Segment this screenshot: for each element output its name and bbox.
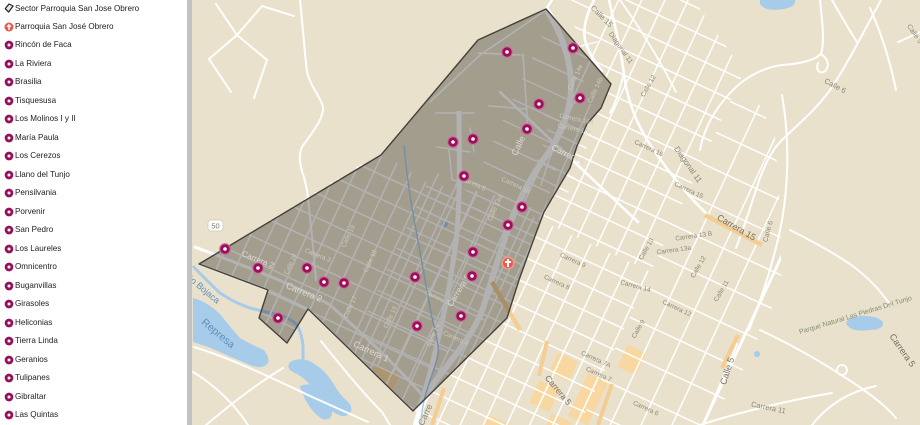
svg-text:50: 50 — [211, 222, 219, 231]
